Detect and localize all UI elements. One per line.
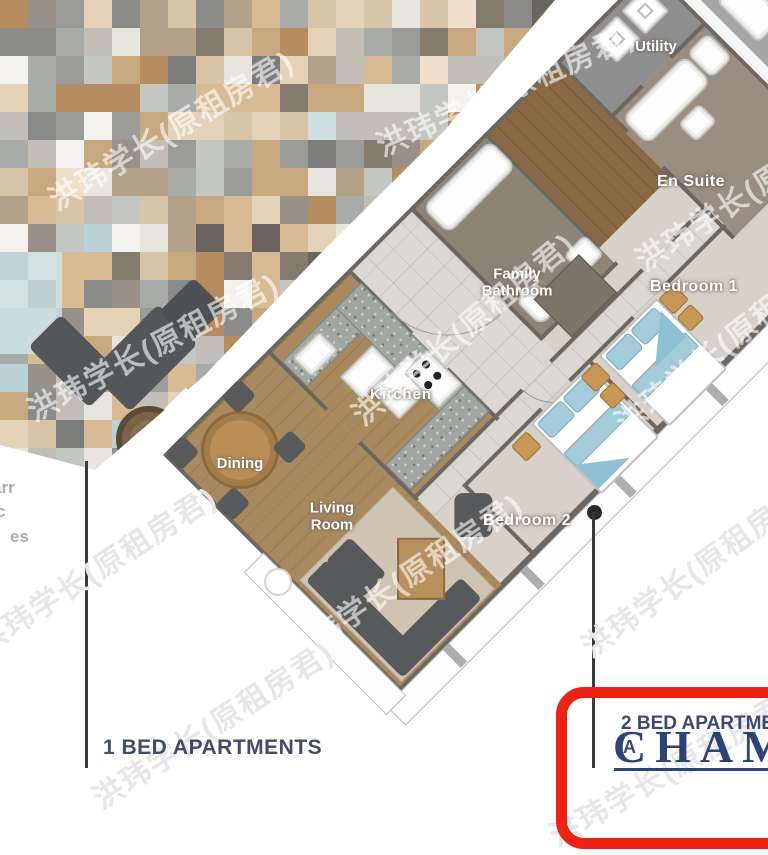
mosaic-tile [448,56,476,84]
mosaic-tile [420,28,448,56]
mosaic-tile [420,56,448,84]
mosaic-tile [308,0,336,28]
mosaic-tile [0,392,28,420]
living-room-line2: Room [311,516,354,533]
mosaic-tile [168,84,196,112]
room-label-bedroom2: Bedroom 2 [483,512,571,530]
mosaic-tile [252,196,280,224]
mosaic-tile [196,336,224,364]
mosaic-tile [28,84,56,112]
mosaic-tile [140,112,168,140]
mosaic-tile [28,168,56,196]
mosaic-tile [336,84,364,112]
room-label-ensuite: En Suite [657,173,725,191]
mosaic-tile [364,196,392,224]
room-label-bedroom1: Bedroom 1 [650,278,738,296]
mosaic-tile [476,84,504,112]
mosaic-tile [56,56,84,84]
mosaic-tile [84,84,112,112]
mosaic-tile [140,28,168,56]
mosaic-tile [196,252,224,280]
watermark-text: 洪玮学长(原租房君) [83,628,342,817]
mosaic-tile [448,0,476,28]
mosaic-tile [84,0,112,28]
mosaic-tile [196,532,224,560]
mosaic-tile [28,140,56,168]
edge-text-fragment: c [0,502,5,522]
mosaic-tile [476,28,504,56]
mosaic-tile [84,196,112,224]
mosaic-tile [56,28,84,56]
mosaic-tile [140,0,168,28]
mosaic-tile [224,28,252,56]
mosaic-tile [308,56,336,84]
mosaic-tile [392,28,420,56]
mosaic-tile [140,448,168,476]
mosaic-tile [308,112,336,140]
mosaic-tile [56,0,84,28]
mosaic-tile [252,140,280,168]
mosaic-tile [280,252,308,280]
mosaic-tile [196,196,224,224]
mosaic-tile [196,0,224,28]
mosaic-tile [28,448,56,476]
mosaic-tile [252,84,280,112]
mosaic-tile [168,224,196,252]
mosaic-tile [112,56,140,84]
mosaic-tile [308,28,336,56]
mosaic-tile [0,84,28,112]
mosaic-tile [0,28,28,56]
mosaic-tile [224,0,252,28]
mosaic-tile [112,532,140,560]
mosaic-tile [168,56,196,84]
mosaic-tile [140,196,168,224]
mosaic-tile [84,308,112,336]
mosaic-tile [336,196,364,224]
mosaic-tile [336,112,364,140]
mosaic-tile [280,280,308,308]
mosaic-tile [252,280,280,308]
mosaic-tile [252,308,280,336]
mosaic-tile [224,280,252,308]
room-label-utility: Utility [635,39,677,56]
mosaic-tile [168,392,196,420]
mosaic-tile [280,196,308,224]
mosaic-tile [504,28,532,56]
mosaic-tile [196,168,224,196]
mosaic-tile [196,224,224,252]
mosaic-tile [308,168,336,196]
mosaic-tile [168,196,196,224]
mosaic-tile [112,0,140,28]
mosaic-tile [28,392,56,420]
family-bathroom-line1: Family [493,266,541,283]
mosaic-tile [28,0,56,28]
mosaic-tile [28,532,56,560]
mosaic-tile [280,28,308,56]
mosaic-tile [0,224,28,252]
edge-text-fragment: arr [0,478,15,498]
mosaic-tile [476,0,504,28]
mosaic-tile [364,0,392,28]
mosaic-tile [504,0,532,28]
caption-one-bed-apartments: 1 BED APARTMENTS [103,736,322,760]
living-room-line1: Living [310,500,354,517]
mosaic-tile [112,504,140,532]
mosaic-tile [140,224,168,252]
watermark-text: 洪玮学长(原租房君) [0,473,224,662]
mosaic-tile [196,28,224,56]
mosaic-tile [252,28,280,56]
mosaic-tile [112,84,140,112]
mosaic-tile [280,84,308,112]
mosaic-tile [308,140,336,168]
mosaic-tile [28,504,56,532]
mosaic-tile [56,420,84,448]
mosaic-tile [280,0,308,28]
mosaic-tile [336,0,364,28]
room-label-family-bathroom: Family Bathroom [482,267,553,300]
mosaic-tile [168,504,196,532]
mosaic-tile [448,112,476,140]
edge-text-fragment: es [10,527,29,547]
mosaic-tile [28,224,56,252]
mosaic-tile [364,168,392,196]
callout-line-1bed [85,461,88,768]
mosaic-tile [392,112,420,140]
mosaic-tile [84,252,112,280]
mosaic-tile [0,196,28,224]
mosaic-tile [168,252,196,280]
mosaic-tile [224,84,252,112]
mosaic-tile [252,252,280,280]
mosaic-tile [168,140,196,168]
mosaic-tile [252,168,280,196]
mosaic-tile [28,56,56,84]
brand-watermark-text: CHAMP [613,720,768,773]
mosaic-tile [224,112,252,140]
mosaic-tile [112,196,140,224]
mosaic-tile [56,168,84,196]
mosaic-tile [28,112,56,140]
mosaic-tile [532,28,560,56]
mosaic-tile [420,140,448,168]
mosaic-tile [84,532,112,560]
mosaic-tile [56,224,84,252]
mosaic-tile [84,504,112,532]
mosaic-tile [84,140,112,168]
mosaic-tile [0,140,28,168]
coffee-table [397,538,445,600]
mosaic-tile [112,448,140,476]
mosaic-tile [504,56,532,84]
mosaic-tile [0,448,28,476]
mosaic-tile [252,0,280,28]
mosaic-tile [0,420,28,448]
mosaic-tile [28,420,56,448]
mosaic-tile [56,84,84,112]
mosaic-tile [252,224,280,252]
mosaic-tile [168,168,196,196]
mosaic-tile [0,56,28,84]
mosaic-tile [336,140,364,168]
two-bed-callout-box: 2 BED APARTMENTS A CHAMP [556,687,768,849]
mosaic-tile [84,280,112,308]
mosaic-tile [364,112,392,140]
mosaic-tile [56,504,84,532]
mosaic-tile [336,56,364,84]
family-bathroom-line2: Bathroom [482,282,553,299]
mosaic-tile [364,56,392,84]
mosaic-tile [140,56,168,84]
mosaic-tile [0,0,28,28]
mosaic-tile [224,56,252,84]
mosaic-tile [336,28,364,56]
mosaic-tile [140,252,168,280]
mosaic-tile [140,168,168,196]
mosaic-tile [56,448,84,476]
mosaic-tile [84,168,112,196]
mosaic-tile [224,336,252,364]
room-label-kitchen: Kitchen [370,387,432,404]
mosaic-tile [140,84,168,112]
mosaic-tile [84,476,112,504]
mosaic-tile [28,476,56,504]
mosaic-tile [196,364,224,392]
mosaic-tile [392,56,420,84]
mosaic-tile [252,56,280,84]
mosaic-tile [168,28,196,56]
mosaic-tile [84,28,112,56]
mosaic-tile [0,168,28,196]
mosaic-tile [84,420,112,448]
mosaic-tile [56,112,84,140]
mosaic-tile [196,140,224,168]
brand-underline [614,768,768,771]
mosaic-tile [224,140,252,168]
mosaic-tile [280,168,308,196]
mosaic-tile [84,224,112,252]
mosaic-tile [0,364,28,392]
mosaic-tile [224,308,252,336]
mosaic-tile [336,224,364,252]
mosaic-tile [308,196,336,224]
mosaic-tile [0,112,28,140]
mosaic-tile [56,476,84,504]
mosaic-tile [168,112,196,140]
mosaic-tile [280,224,308,252]
mosaic-tile [392,0,420,28]
room-label-dining: Dining [217,456,264,473]
mosaic-tile [84,56,112,84]
mosaic-tile [532,0,560,28]
mosaic-tile [364,28,392,56]
mosaic-tile [112,224,140,252]
mosaic-tile [420,0,448,28]
mosaic-tile [336,168,364,196]
mosaic-tile [84,448,112,476]
mosaic-tile [420,84,448,112]
mosaic-tile [420,112,448,140]
mosaic-tile [308,84,336,112]
floor-plan-page: { "plan": { "rooms": { "utility": "Utili… [0,0,768,768]
mosaic-tile [448,28,476,56]
mosaic-tile [112,476,140,504]
mosaic-tile [28,28,56,56]
mosaic-tile [392,140,420,168]
mosaic-tile [140,280,168,308]
mosaic-tile [196,84,224,112]
mosaic-tile [252,112,280,140]
mosaic-tile [196,112,224,140]
mosaic-tile [112,168,140,196]
mosaic-tile [140,532,168,560]
mosaic-tile [112,280,140,308]
mosaic-tile [308,224,336,252]
mosaic-tile [140,476,168,504]
room-label-living-room: Living Room [310,501,354,534]
mosaic-tile [196,56,224,84]
mosaic-tile [224,168,252,196]
mosaic-tile [280,112,308,140]
mosaic-tile [364,84,392,112]
mosaic-tile [56,196,84,224]
mosaic-tile [364,140,392,168]
mosaic-tile [280,140,308,168]
mosaic-tile [168,532,196,560]
mosaic-tile [140,140,168,168]
mosaic-tile [448,84,476,112]
mosaic-tile [112,252,140,280]
floor-lamp [264,568,292,596]
mosaic-tile [112,28,140,56]
mosaic-tile [392,84,420,112]
mosaic-tile [140,504,168,532]
mosaic-tile [224,224,252,252]
mosaic-tile [56,140,84,168]
mosaic-tile [28,196,56,224]
mosaic-tile [280,56,308,84]
mosaic-tile [112,140,140,168]
mosaic-tile [168,0,196,28]
mosaic-tile [84,112,112,140]
mosaic-tile [476,56,504,84]
mosaic-tile [308,252,336,280]
mosaic-tile [392,168,420,196]
mosaic-tile [112,112,140,140]
mosaic-tile [224,196,252,224]
mosaic-tile [56,532,84,560]
mosaic-tile [224,252,252,280]
